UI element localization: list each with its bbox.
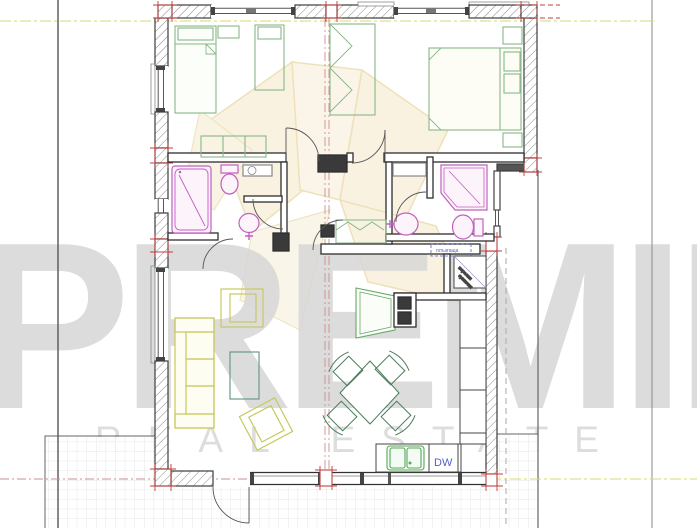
svg-text:DW: DW [434,457,453,469]
svg-text:плъзгаща: плъзгаща [436,248,459,254]
